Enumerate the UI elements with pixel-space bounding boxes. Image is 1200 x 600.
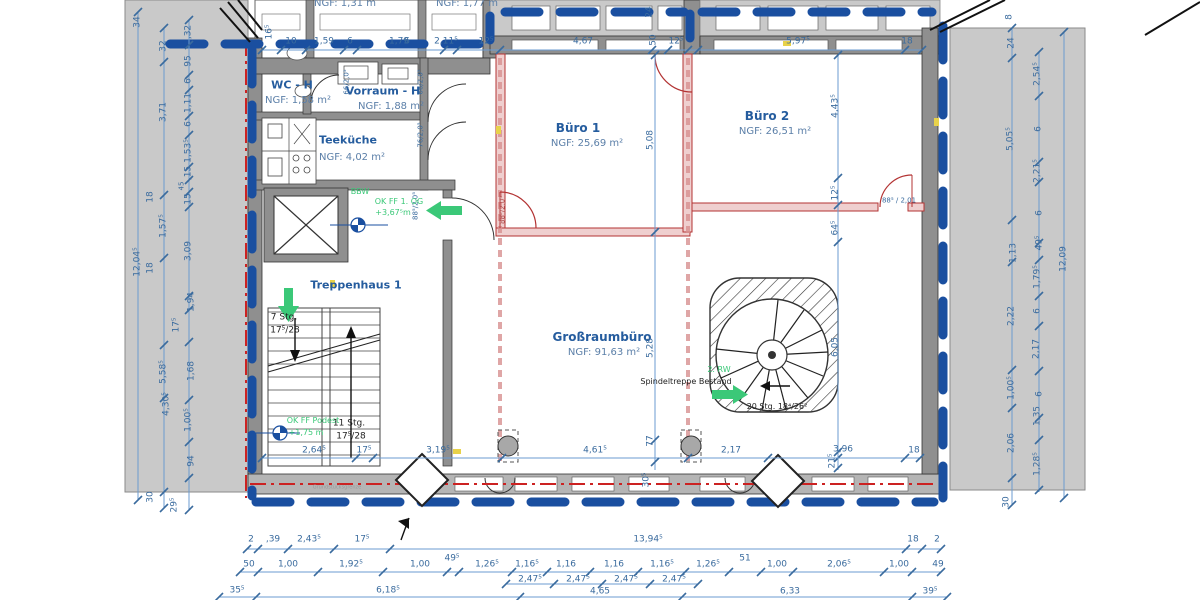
door-swings xyxy=(311,55,912,493)
arrow-down-icon xyxy=(284,288,293,308)
floor-plan-canvas: NGF: 1,31 mNGF: 1,77 m16⁵101,5961,7962,1… xyxy=(0,0,1200,600)
neighbor-building-right xyxy=(950,28,1085,490)
kitchen-fixtures xyxy=(262,118,316,184)
columns xyxy=(498,430,701,462)
staircase-straight xyxy=(268,308,380,466)
neighbor-building-left xyxy=(125,0,248,492)
floor-plan-drawing xyxy=(0,0,1200,600)
arrow-right-icon xyxy=(712,390,734,399)
new-walls-red xyxy=(496,54,924,466)
sink-icon xyxy=(295,85,311,97)
section-flag xyxy=(398,518,409,540)
arrow-left-icon xyxy=(440,206,462,215)
